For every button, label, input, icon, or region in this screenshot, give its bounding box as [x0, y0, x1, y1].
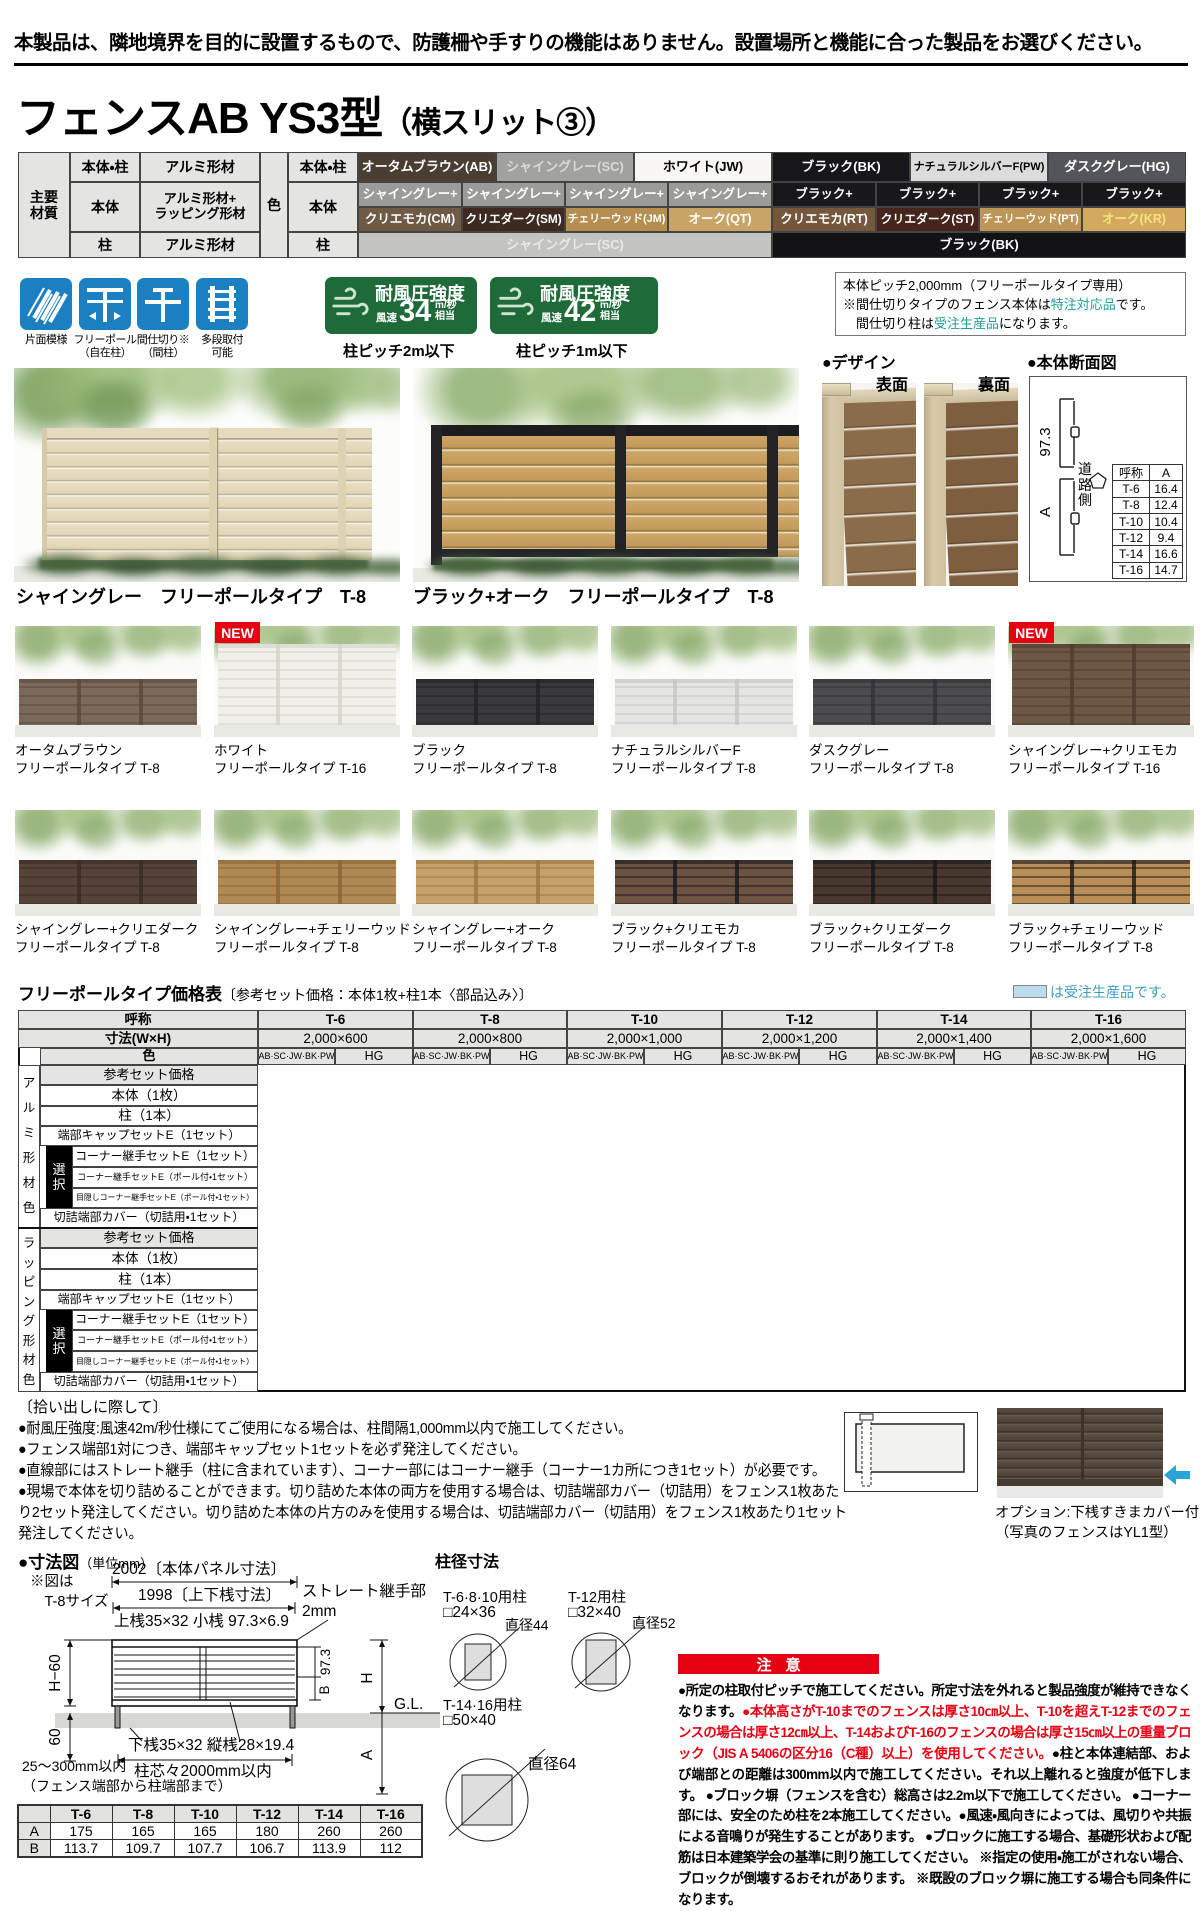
svg-text:A: A [359, 1749, 376, 1760]
svg-text:下桟35×32 縦桟28×19.4: 下桟35×32 縦桟28×19.4 [128, 1736, 295, 1754]
svg-text:97.3: 97.3 [1037, 427, 1054, 456]
svg-text:1998〔上下桟寸法〕: 1998〔上下桟寸法〕 [138, 1586, 281, 1604]
svg-text:A: A [1037, 507, 1054, 517]
svg-text:H: H [359, 1672, 376, 1683]
svg-text:上桟35×32 小桟 97.3×6.9: 上桟35×32 小桟 97.3×6.9 [114, 1612, 289, 1630]
svg-text:H−60: H−60 [47, 1654, 64, 1692]
svg-text:G.L.: G.L. [394, 1696, 423, 1713]
svg-text:60: 60 [47, 1728, 64, 1746]
svg-text:ストレート継手部: ストレート継手部 [302, 1582, 426, 1600]
svg-text:97.3: 97.3 [318, 1649, 333, 1675]
svg-text:2002〔本体パネル寸法〕: 2002〔本体パネル寸法〕 [112, 1560, 286, 1578]
svg-text:B: B [317, 1685, 332, 1694]
svg-text:2mm: 2mm [302, 1603, 336, 1620]
